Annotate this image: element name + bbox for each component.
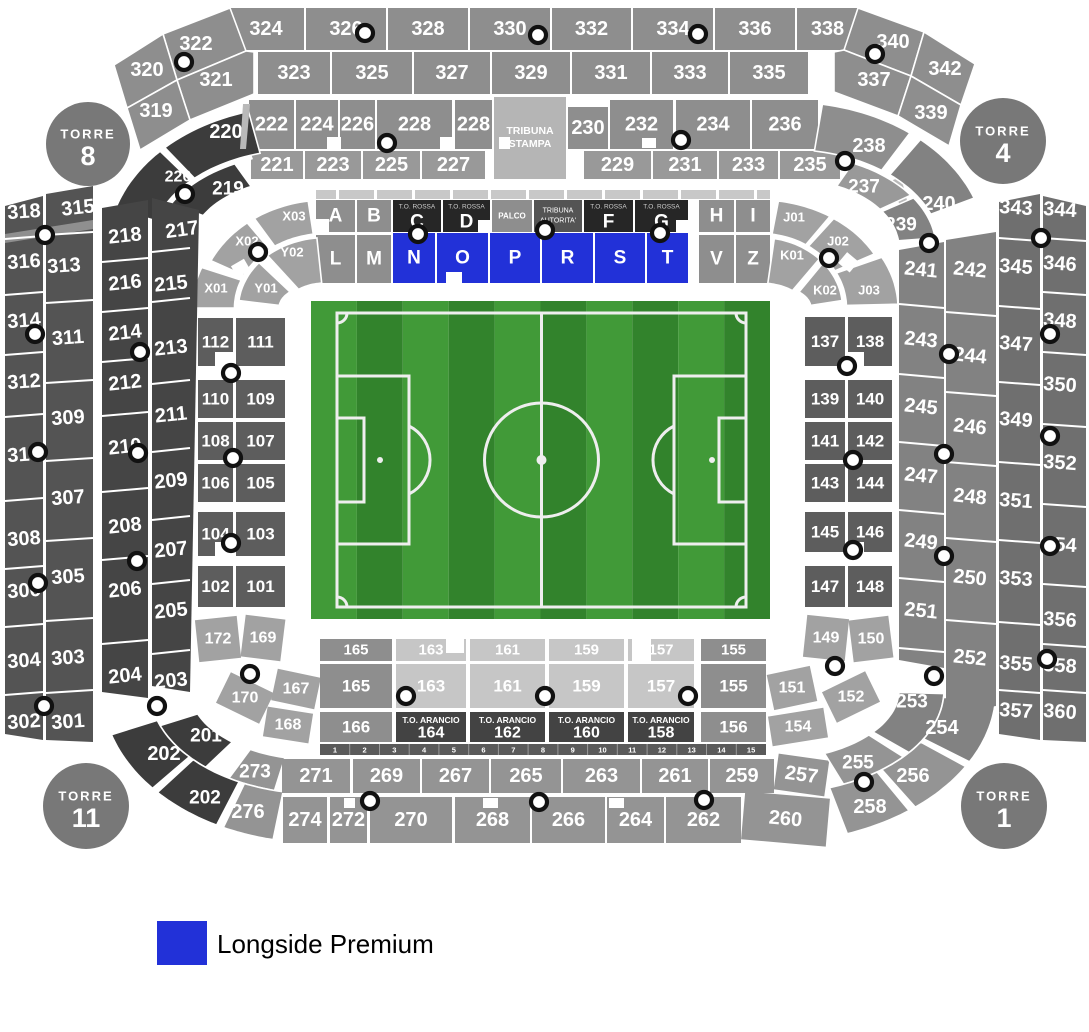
svg-text:241: 241: [903, 257, 938, 282]
svg-text:165: 165: [343, 642, 368, 659]
svg-text:220: 220: [165, 169, 192, 186]
svg-text:X03: X03: [282, 209, 305, 224]
svg-text:222: 222: [255, 114, 288, 136]
svg-text:155: 155: [719, 677, 747, 696]
svg-text:144: 144: [856, 474, 885, 493]
svg-text:334: 334: [656, 18, 690, 40]
svg-text:312: 312: [7, 370, 42, 394]
svg-text:111: 111: [247, 333, 274, 352]
svg-text:T.O. ARANCIO: T.O. ARANCIO: [479, 715, 537, 725]
svg-text:P: P: [509, 248, 522, 269]
svg-text:5: 5: [452, 746, 456, 755]
svg-text:216: 216: [107, 270, 142, 295]
svg-text:355: 355: [999, 652, 1034, 676]
svg-text:228: 228: [457, 114, 490, 136]
svg-text:T.O. ARANCIO: T.O. ARANCIO: [402, 715, 460, 725]
svg-text:J03: J03: [858, 283, 880, 298]
svg-text:217: 217: [164, 217, 200, 243]
svg-text:226: 226: [341, 114, 374, 136]
svg-text:158: 158: [648, 725, 675, 742]
svg-text:202: 202: [147, 743, 180, 765]
svg-text:TORRE: TORRE: [60, 127, 115, 142]
svg-text:STAMPA: STAMPA: [509, 138, 552, 150]
svg-text:143: 143: [811, 474, 839, 493]
svg-text:273: 273: [239, 762, 271, 783]
svg-text:338: 338: [811, 18, 844, 40]
svg-text:347: 347: [999, 332, 1034, 356]
svg-text:319: 319: [139, 100, 172, 122]
svg-text:260: 260: [768, 807, 803, 832]
svg-text:15: 15: [747, 746, 755, 755]
svg-text:T.O. ARANCIO: T.O. ARANCIO: [632, 715, 690, 725]
svg-text:253: 253: [896, 692, 928, 713]
svg-text:215: 215: [153, 271, 188, 296]
svg-text:304: 304: [7, 649, 43, 673]
svg-text:254: 254: [925, 717, 959, 739]
svg-text:T.O. ROSSA: T.O. ROSSA: [590, 204, 627, 211]
svg-text:342: 342: [928, 58, 961, 80]
svg-text:11: 11: [628, 746, 636, 755]
svg-text:266: 266: [552, 809, 585, 831]
svg-text:PALCO: PALCO: [498, 212, 525, 221]
svg-text:206: 206: [107, 577, 142, 602]
svg-text:258: 258: [853, 796, 886, 818]
svg-text:TRIBUNA: TRIBUNA: [506, 125, 554, 137]
svg-text:240: 240: [922, 193, 955, 215]
svg-text:164: 164: [418, 725, 445, 742]
svg-text:308: 308: [7, 527, 42, 551]
svg-text:214: 214: [107, 320, 143, 345]
svg-text:346: 346: [1043, 252, 1078, 276]
svg-text:267: 267: [439, 765, 472, 787]
svg-text:351: 351: [999, 489, 1034, 513]
svg-text:7: 7: [511, 746, 515, 755]
svg-text:139: 139: [811, 390, 839, 409]
svg-text:360: 360: [1043, 700, 1078, 724]
svg-text:276: 276: [231, 801, 264, 823]
svg-text:219: 219: [212, 179, 244, 200]
svg-text:337: 337: [857, 69, 890, 91]
svg-text:163: 163: [418, 642, 443, 659]
svg-text:311: 311: [51, 326, 85, 350]
svg-text:J01: J01: [783, 210, 805, 225]
svg-text:232: 232: [625, 114, 658, 136]
svg-text:Z: Z: [747, 249, 759, 270]
svg-text:265: 265: [509, 765, 542, 787]
svg-text:305: 305: [51, 565, 86, 589]
svg-text:301: 301: [51, 710, 86, 734]
svg-text:X01: X01: [204, 281, 227, 296]
svg-text:328: 328: [411, 18, 444, 40]
svg-text:141: 141: [811, 432, 839, 451]
svg-text:235: 235: [793, 154, 826, 176]
svg-text:203: 203: [153, 668, 188, 693]
svg-text:Longside Premium: Longside Premium: [217, 929, 434, 959]
svg-text:224: 224: [300, 114, 334, 136]
svg-text:151: 151: [779, 680, 806, 697]
svg-text:313: 313: [47, 254, 82, 278]
svg-text:3: 3: [392, 746, 396, 755]
svg-text:157: 157: [647, 677, 675, 696]
svg-text:105: 105: [246, 474, 274, 493]
svg-text:336: 336: [738, 18, 771, 40]
svg-text:148: 148: [856, 577, 884, 596]
svg-text:333: 333: [673, 62, 706, 84]
svg-text:256: 256: [896, 765, 929, 787]
svg-text:230: 230: [571, 117, 604, 139]
svg-text:149: 149: [813, 630, 840, 647]
svg-text:213: 213: [153, 335, 188, 360]
svg-text:274: 274: [288, 809, 322, 831]
svg-text:1: 1: [996, 803, 1011, 833]
svg-text:11: 11: [72, 803, 101, 833]
svg-text:140: 140: [856, 390, 884, 409]
svg-text:208: 208: [107, 513, 142, 538]
svg-text:A: A: [329, 206, 343, 227]
svg-text:237: 237: [848, 177, 880, 198]
svg-text:257: 257: [783, 762, 819, 788]
svg-text:250: 250: [952, 565, 987, 590]
svg-text:252: 252: [952, 645, 987, 670]
svg-text:F: F: [603, 212, 615, 233]
svg-text:350: 350: [1043, 373, 1078, 397]
svg-text:220: 220: [209, 121, 242, 143]
svg-text:V: V: [710, 249, 723, 270]
svg-text:172: 172: [205, 631, 232, 648]
svg-text:330: 330: [493, 18, 526, 40]
svg-text:110: 110: [202, 390, 229, 409]
svg-text:169: 169: [250, 630, 277, 647]
svg-text:229: 229: [601, 154, 634, 176]
svg-text:I: I: [750, 206, 755, 227]
svg-text:T.O. ARANCIO: T.O. ARANCIO: [558, 715, 616, 725]
svg-text:211: 211: [154, 402, 188, 427]
svg-text:Y02: Y02: [280, 245, 303, 260]
svg-text:324: 324: [249, 18, 283, 40]
svg-text:357: 357: [999, 699, 1034, 723]
svg-text:201: 201: [190, 726, 222, 747]
svg-text:163: 163: [417, 677, 445, 696]
svg-text:353: 353: [999, 567, 1034, 591]
svg-text:303: 303: [51, 646, 86, 670]
svg-text:339: 339: [914, 102, 947, 124]
svg-text:223: 223: [316, 154, 349, 176]
svg-text:270: 270: [394, 809, 427, 831]
svg-text:331: 331: [594, 62, 627, 84]
svg-text:233: 233: [732, 154, 765, 176]
svg-text:259: 259: [725, 765, 758, 787]
svg-text:349: 349: [999, 408, 1034, 432]
svg-text:239: 239: [885, 215, 917, 236]
svg-text:322: 322: [179, 33, 212, 55]
svg-text:167: 167: [283, 681, 310, 698]
svg-text:8: 8: [80, 141, 95, 171]
svg-text:315: 315: [60, 195, 95, 220]
svg-text:268: 268: [476, 809, 509, 831]
svg-text:242: 242: [952, 257, 987, 282]
svg-text:271: 271: [299, 765, 332, 787]
svg-text:1: 1: [333, 746, 337, 755]
svg-text:343: 343: [999, 196, 1034, 220]
svg-text:B: B: [367, 206, 381, 227]
svg-text:247: 247: [903, 463, 938, 488]
svg-text:H: H: [710, 206, 724, 227]
svg-text:156: 156: [719, 718, 747, 737]
svg-text:107: 107: [246, 432, 274, 451]
svg-text:323: 323: [277, 62, 310, 84]
svg-text:142: 142: [856, 432, 884, 451]
svg-text:160: 160: [573, 725, 600, 742]
svg-text:8: 8: [541, 746, 545, 755]
svg-text:321: 321: [199, 69, 232, 91]
svg-text:264: 264: [619, 809, 653, 831]
svg-text:M: M: [366, 249, 382, 270]
svg-text:231: 231: [668, 154, 701, 176]
svg-text:344: 344: [1043, 198, 1079, 222]
svg-text:166: 166: [342, 718, 370, 737]
svg-text:170: 170: [232, 690, 259, 707]
svg-text:332: 332: [575, 18, 608, 40]
svg-text:249: 249: [903, 529, 938, 554]
svg-text:112: 112: [202, 333, 229, 352]
svg-text:137: 137: [811, 332, 839, 351]
svg-text:161: 161: [493, 677, 521, 696]
svg-text:106: 106: [201, 474, 229, 493]
svg-text:145: 145: [811, 523, 839, 542]
svg-text:335: 335: [752, 62, 785, 84]
svg-text:12: 12: [658, 746, 666, 755]
svg-text:152: 152: [838, 689, 865, 706]
svg-text:154: 154: [785, 719, 812, 736]
svg-text:K02: K02: [813, 283, 837, 298]
svg-text:T.O. ROSSA: T.O. ROSSA: [448, 204, 485, 211]
svg-text:162: 162: [494, 725, 521, 742]
svg-text:309: 309: [51, 406, 86, 430]
svg-text:N: N: [407, 248, 421, 269]
svg-text:255: 255: [842, 753, 874, 774]
svg-text:320: 320: [130, 59, 163, 81]
svg-text:150: 150: [858, 631, 885, 648]
svg-text:261: 261: [658, 765, 691, 787]
svg-text:9: 9: [571, 746, 575, 755]
svg-text:307: 307: [51, 486, 86, 510]
svg-text:TORRE: TORRE: [975, 124, 1030, 139]
svg-text:TRIBUNA: TRIBUNA: [543, 208, 574, 215]
svg-text:T: T: [662, 248, 674, 269]
svg-text:J02: J02: [827, 234, 849, 249]
svg-text:S: S: [614, 248, 627, 269]
svg-text:225: 225: [375, 154, 408, 176]
svg-text:234: 234: [696, 114, 730, 136]
svg-text:108: 108: [201, 432, 229, 451]
svg-text:228: 228: [398, 114, 431, 136]
svg-text:161: 161: [495, 642, 520, 659]
svg-text:6: 6: [481, 746, 485, 755]
svg-text:327: 327: [435, 62, 468, 84]
svg-text:269: 269: [370, 765, 403, 787]
svg-text:236: 236: [768, 114, 801, 136]
svg-text:168: 168: [275, 717, 302, 734]
svg-text:155: 155: [721, 642, 746, 659]
svg-text:356: 356: [1043, 608, 1078, 632]
svg-text:227: 227: [437, 154, 470, 176]
svg-text:D: D: [460, 212, 474, 233]
svg-text:TORRE: TORRE: [976, 789, 1031, 804]
svg-text:205: 205: [153, 598, 188, 623]
svg-text:246: 246: [952, 414, 987, 439]
svg-text:352: 352: [1043, 451, 1078, 475]
svg-text:O: O: [455, 248, 470, 269]
svg-text:209: 209: [153, 468, 188, 493]
svg-text:345: 345: [999, 255, 1034, 279]
svg-text:165: 165: [342, 677, 370, 696]
svg-text:103: 103: [246, 525, 274, 544]
svg-text:318: 318: [7, 200, 42, 224]
svg-text:146: 146: [856, 523, 884, 542]
svg-text:109: 109: [246, 390, 274, 409]
svg-text:102: 102: [201, 577, 229, 596]
svg-text:159: 159: [572, 677, 600, 696]
svg-text:138: 138: [856, 332, 884, 351]
svg-text:4: 4: [995, 138, 1010, 168]
svg-text:302: 302: [7, 710, 42, 734]
svg-text:263: 263: [585, 765, 618, 787]
svg-text:248: 248: [952, 484, 987, 509]
svg-text:T.O. ROSSA: T.O. ROSSA: [399, 204, 436, 211]
svg-text:329: 329: [514, 62, 547, 84]
svg-text:101: 101: [246, 577, 274, 596]
svg-text:13: 13: [688, 746, 696, 755]
svg-text:K01: K01: [780, 248, 804, 263]
svg-text:245: 245: [903, 394, 938, 419]
svg-text:325: 325: [355, 62, 388, 84]
svg-text:221: 221: [260, 154, 293, 176]
svg-text:212: 212: [107, 370, 142, 395]
svg-text:10: 10: [598, 746, 606, 755]
svg-text:T.O. ROSSA: T.O. ROSSA: [643, 204, 680, 211]
svg-text:L: L: [330, 249, 342, 270]
svg-text:2: 2: [363, 746, 367, 755]
svg-text:238: 238: [852, 135, 885, 157]
svg-text:272: 272: [332, 809, 365, 831]
svg-text:243: 243: [903, 327, 938, 352]
svg-text:316: 316: [7, 250, 42, 274]
svg-text:202: 202: [189, 788, 221, 809]
svg-text:159: 159: [574, 642, 599, 659]
svg-text:14: 14: [717, 746, 726, 755]
svg-text:207: 207: [153, 537, 188, 562]
svg-text:157: 157: [648, 642, 673, 659]
svg-text:R: R: [561, 248, 575, 269]
svg-text:147: 147: [811, 577, 839, 596]
svg-text:218: 218: [107, 223, 142, 248]
svg-text:TORRE: TORRE: [58, 789, 113, 804]
svg-text:251: 251: [903, 598, 938, 623]
svg-text:Y01: Y01: [254, 281, 277, 296]
svg-text:204: 204: [107, 663, 143, 688]
svg-text:262: 262: [687, 809, 720, 831]
